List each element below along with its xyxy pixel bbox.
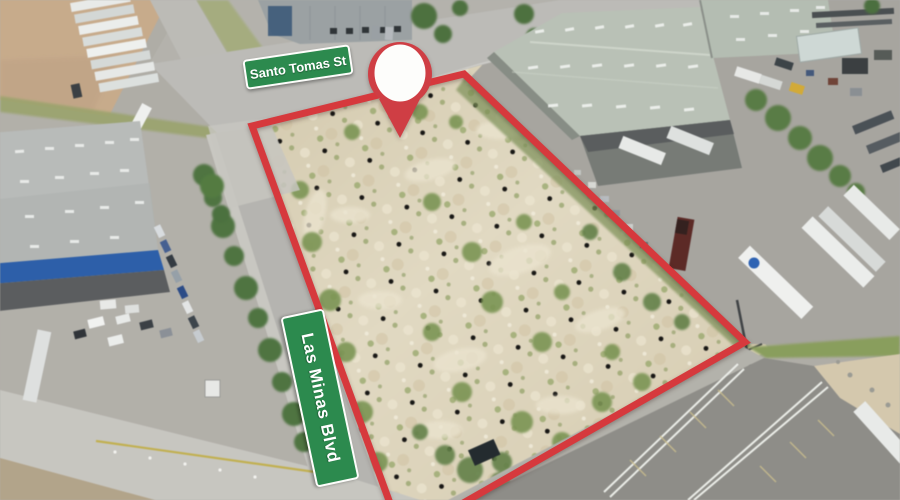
aerial-listing-photo: Santo Tomas St Las Minas Blvd bbox=[0, 0, 900, 500]
property-overlay bbox=[0, 0, 900, 500]
location-pin-icon bbox=[368, 42, 432, 138]
